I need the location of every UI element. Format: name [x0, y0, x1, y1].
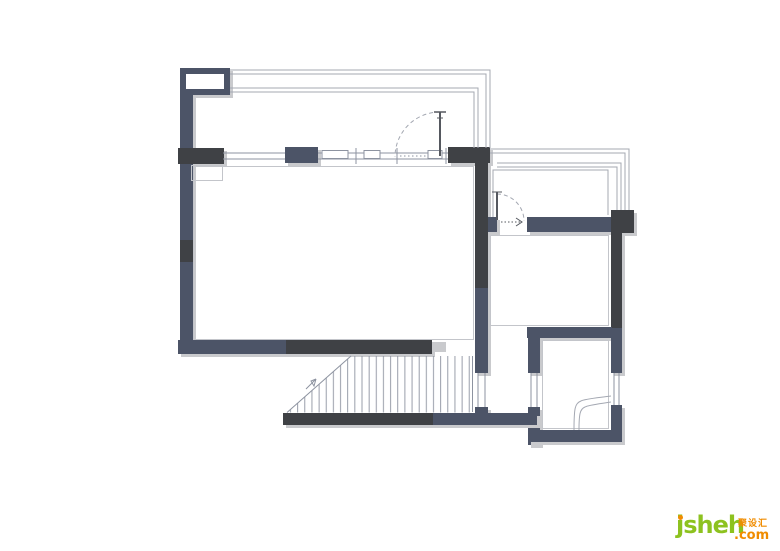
wall-smallroom-top [527, 327, 612, 338]
linework-layer [0, 0, 780, 551]
wall-corridor-top [527, 217, 611, 232]
logo-j-dot [678, 515, 683, 520]
wall-bottom-mid [286, 340, 432, 354]
wall-bottom-low-segment [432, 342, 446, 352]
wall-smallroom-right-a [611, 328, 622, 373]
logo-tld-text: .com [734, 528, 769, 543]
wall-top-window-pier [285, 147, 318, 163]
wall-right-outer [611, 233, 622, 328]
floor-plan-canvas: jsheh 聚设汇 .com [0, 0, 780, 551]
wall-bottom-left [178, 340, 286, 354]
door-swing-top [395, 112, 446, 157]
wall-stair-bottom-b [433, 413, 537, 425]
terrace-lines-top-left [230, 70, 490, 148]
room-inner-face-lines [192, 166, 609, 429]
wall-left-mid [180, 240, 193, 262]
wall-right-upper [475, 163, 488, 288]
terrace-lines-right [490, 149, 629, 217]
wall-right-mid [475, 288, 488, 355]
wall-smallroom-left-a [528, 338, 540, 373]
jsheh-logo: jsheh 聚设汇 .com [676, 514, 780, 550]
window-top-right [318, 148, 448, 164]
column-right [611, 210, 634, 233]
wall-top-right-corner [448, 147, 490, 163]
window-top-left [223, 153, 285, 159]
wall-right-stub-a [475, 355, 488, 373]
window-gap-lines [478, 373, 619, 407]
wall-left-top [180, 93, 193, 148]
wall-smallroom-bottom [528, 430, 622, 442]
wall-left-upper [180, 164, 193, 240]
wall-stair-bottom-a [283, 413, 433, 425]
flue-column [180, 68, 230, 95]
staircase [287, 356, 473, 413]
wall-corridor-door-stub [488, 217, 497, 232]
wall-top-left-corner [178, 148, 224, 164]
smallroom-corner-detail [574, 396, 611, 430]
